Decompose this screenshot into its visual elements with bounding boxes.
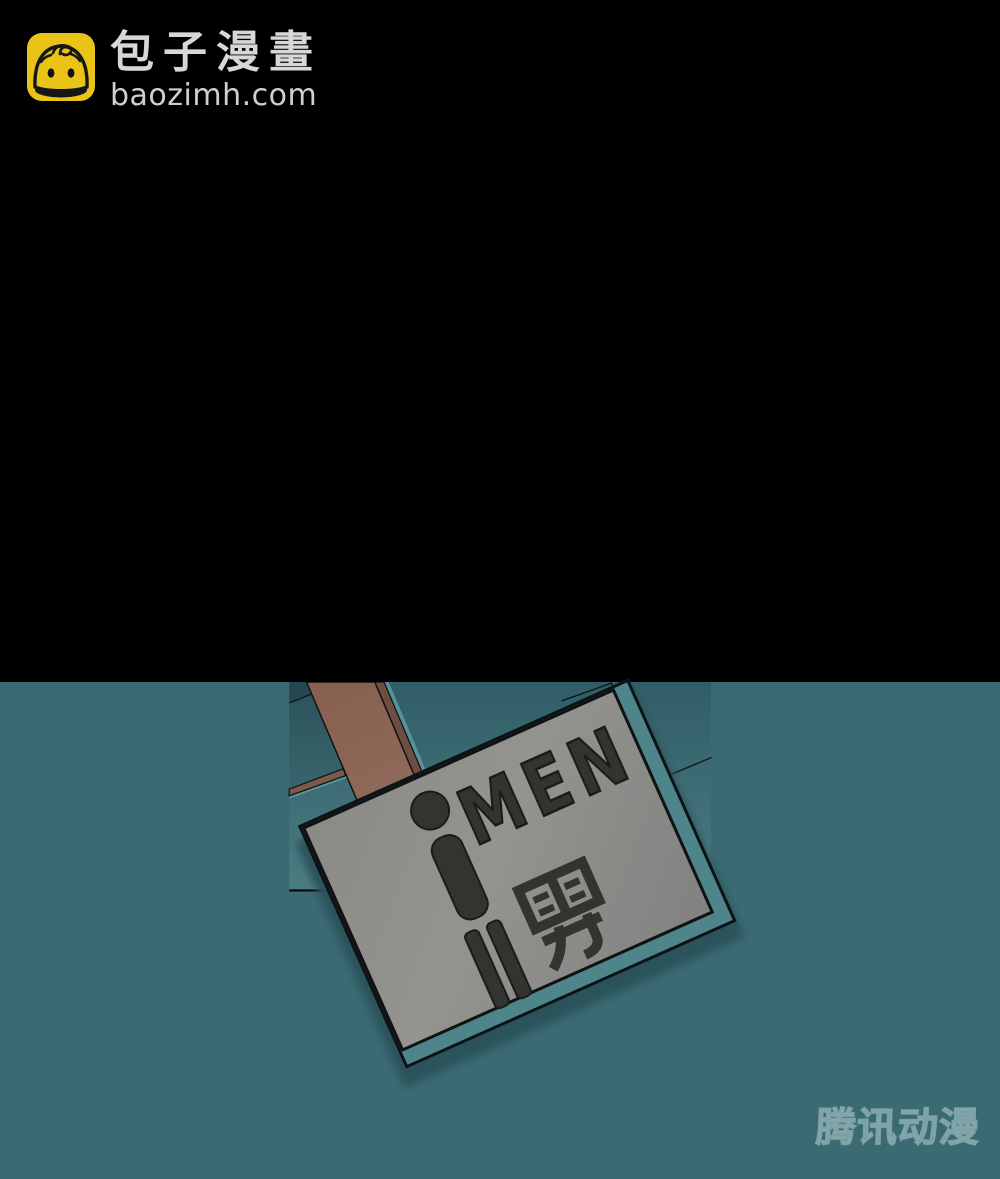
site-logo-text: 包子漫畫 baozimh.com bbox=[110, 31, 322, 111]
site-name: 包子漫畫 bbox=[110, 31, 322, 75]
baozi-bun-icon bbox=[27, 31, 95, 102]
comic-reader-page: { "brand": { "name": "包子漫畫", "domain": "… bbox=[0, 0, 1000, 1179]
site-domain: baozimh.com bbox=[110, 81, 322, 111]
tencent-comics-watermark: 腾讯动漫 bbox=[815, 1108, 980, 1148]
site-logo: 包子漫畫 baozimh.com bbox=[27, 31, 322, 111]
comic-panel: MEN bbox=[0, 682, 1000, 1179]
male-figure-head-icon bbox=[404, 784, 457, 837]
